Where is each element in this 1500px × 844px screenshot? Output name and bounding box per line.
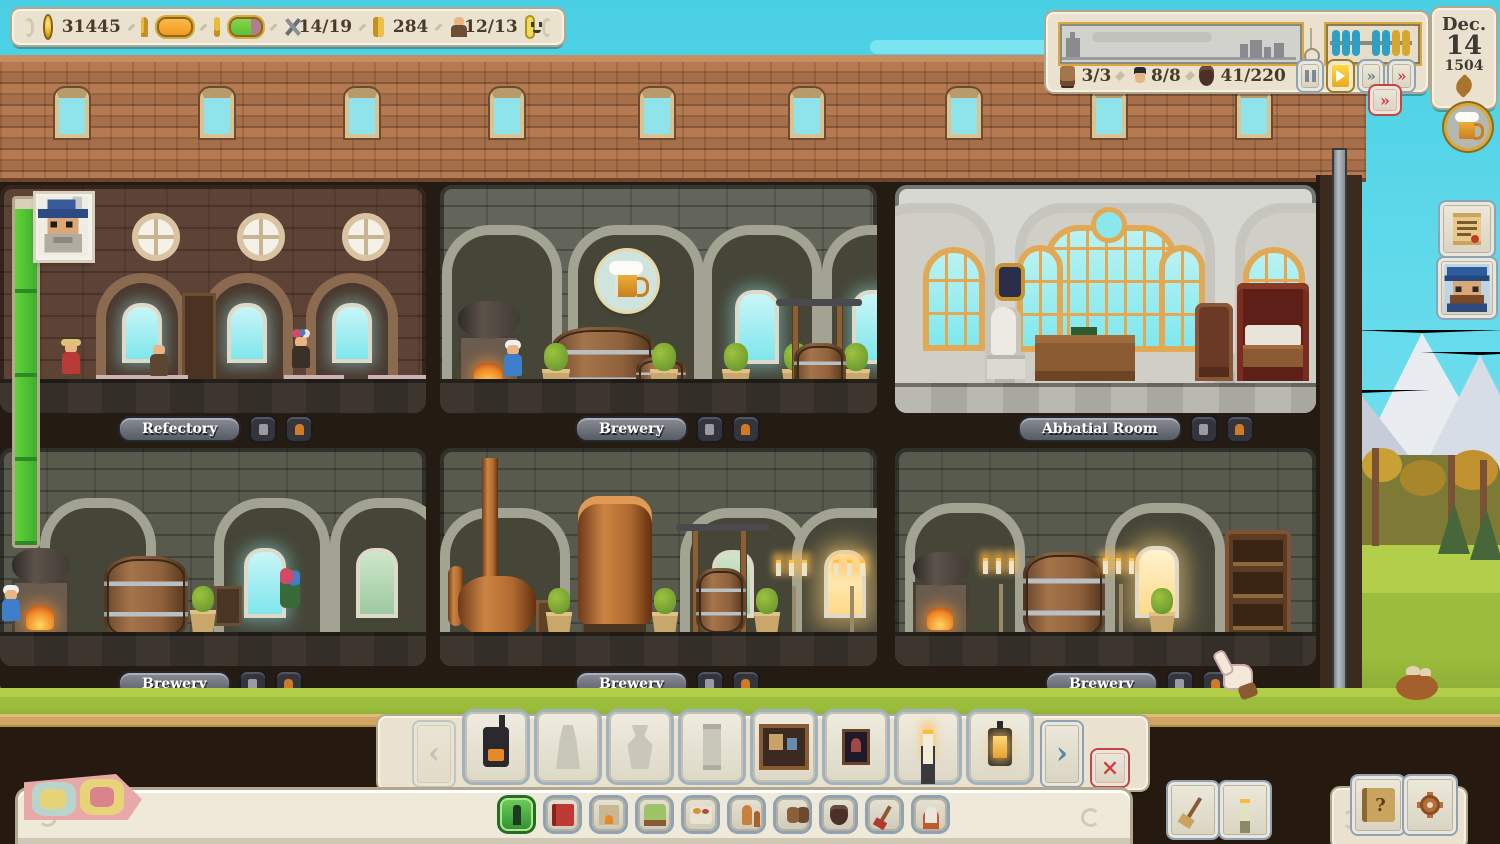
abacus-bead-blue: [1352, 30, 1360, 56]
arched-window: [356, 548, 398, 618]
scroll-curl: [24, 18, 34, 37]
room-label: Refectory: [118, 416, 241, 442]
hop-plant: [654, 588, 676, 614]
category-statues-button[interactable]: [914, 798, 947, 831]
date-year: 1504: [1434, 58, 1494, 74]
scroll-curl: [542, 18, 552, 37]
cauldron: [458, 301, 520, 339]
copper-still[interactable]: [458, 576, 536, 638]
build-item-icon-painting[interactable]: [825, 712, 887, 782]
hop-plant: [1151, 588, 1173, 614]
bottle-cabinet[interactable]: [1225, 530, 1291, 638]
divider: [435, 23, 442, 30]
scroll-curl: [1081, 808, 1100, 827]
mushroom: [1420, 668, 1431, 676]
hop-plant: [192, 586, 214, 612]
autumn-tree: [1400, 460, 1446, 496]
candelabra: [850, 586, 854, 638]
build-item-painting[interactable]: [753, 712, 815, 782]
progress-timeline[interactable]: [1060, 24, 1302, 64]
mug-handle: [637, 277, 649, 297]
candelabra: [999, 584, 1003, 638]
fountain-blueprint-icon: [626, 725, 654, 769]
autumn-tree: [1448, 450, 1498, 490]
statue-icon: [925, 807, 937, 823]
side-window: [923, 247, 985, 351]
copper-tank[interactable]: [578, 496, 652, 624]
category-storage-button[interactable]: [822, 798, 855, 831]
build-item-statue-blueprint[interactable]: [537, 712, 599, 782]
furnace-fire: [26, 606, 54, 630]
press-bar: [676, 524, 770, 531]
grand-window: [1045, 225, 1177, 352]
candelabra: [792, 586, 796, 638]
arched-window: [227, 303, 267, 363]
furnace-fire: [927, 608, 953, 630]
press-barrel[interactable]: [696, 568, 746, 636]
category-books-button[interactable]: [546, 798, 579, 831]
dormer-window: [947, 88, 981, 138]
bottle-icon: [513, 805, 521, 825]
storage-value: 41/220: [1220, 66, 1285, 86]
large-barrel[interactable]: [104, 556, 188, 642]
room-label-group: Brewery: [575, 415, 760, 443]
toolbar-next-button[interactable]: ›: [1042, 722, 1082, 786]
recipe-book-icon: [373, 17, 384, 37]
build-item-column-blueprint[interactable]: [681, 712, 743, 782]
category-cleaning-button[interactable]: [868, 798, 901, 831]
room-label-group: Abbatial Room: [1018, 415, 1254, 443]
statue-blueprint-icon: [556, 725, 580, 769]
window-crown: [1091, 207, 1127, 243]
build-item-fountain-blueprint[interactable]: [609, 712, 671, 782]
candle-icon: [923, 730, 933, 764]
room-brewery-bl[interactable]: [0, 448, 426, 666]
cabinet-shelf: [1233, 604, 1283, 630]
drainpipe: [1334, 150, 1345, 695]
dormer-window: [640, 88, 674, 138]
candles: [776, 560, 807, 576]
room-brewery-top[interactable]: [440, 185, 877, 413]
iron-stove-icon: [483, 727, 509, 767]
candle-icon: [1240, 799, 1250, 821]
room-label-group: Refectory: [118, 415, 313, 443]
game-screen: Refectory Brewery Abbatial Room: [0, 0, 1500, 844]
thumbs-up-icon: [141, 17, 147, 37]
category-decor-button[interactable]: [500, 798, 533, 831]
work-stool: [214, 586, 242, 626]
settings-button[interactable]: [1404, 776, 1456, 834]
bed-icon: [644, 804, 666, 826]
broom-icon: [1184, 797, 1202, 823]
writing-desk[interactable]: [1035, 335, 1135, 381]
dormer-window: [1237, 88, 1271, 138]
character-nun[interactable]: [2, 588, 20, 632]
rose-window: [237, 213, 285, 261]
mood-smiley-icon[interactable]: [527, 17, 533, 37]
workers-value: 8/8: [1151, 66, 1181, 86]
abacus-bead-yellow: [1392, 30, 1400, 56]
room-brewery-bm[interactable]: [440, 448, 877, 666]
dormer-window: [345, 88, 379, 138]
divider: [269, 23, 276, 30]
advisor-portrait-button[interactable]: [1438, 258, 1496, 318]
delete-room-button[interactable]: [1190, 415, 1218, 443]
speed-alert-button[interactable]: »: [1370, 86, 1400, 114]
toolbar-prev-button[interactable]: ‹: [414, 722, 454, 786]
category-tables-button[interactable]: [684, 798, 717, 831]
build-item-lantern[interactable]: [969, 712, 1031, 782]
divider: [359, 23, 366, 30]
assign-monk-button[interactable]: [1226, 415, 1254, 443]
toolbar-close-button[interactable]: ×: [1092, 750, 1128, 786]
beer-mug-icon: [1459, 119, 1475, 139]
still-pipe: [482, 458, 498, 578]
help-button[interactable]: ?: [1352, 776, 1404, 834]
canopy-bed[interactable]: [1237, 283, 1309, 381]
dormer-window: [790, 88, 824, 138]
coin-icon: [43, 14, 53, 40]
pause-button[interactable]: [1298, 61, 1323, 91]
beer-foam: [1455, 112, 1479, 122]
cabinet-shelf: [1233, 540, 1283, 566]
candelabra: [1119, 584, 1123, 638]
wardrobe[interactable]: [1195, 303, 1233, 381]
beer-badge-button[interactable]: [1447, 106, 1489, 148]
press-bar: [776, 299, 862, 306]
still-icon: [742, 805, 752, 825]
status-panel: 3/3 8/8 41/220 » »: [1046, 12, 1428, 92]
abacus-bead-blue: [1332, 30, 1340, 56]
build-item-stove[interactable]: [465, 712, 527, 782]
dormer-window: [55, 88, 89, 138]
hop-plant: [548, 588, 570, 614]
room-label: Brewery: [575, 416, 688, 442]
character-monk-flowers[interactable]: [292, 337, 310, 383]
hop-plant: [844, 343, 868, 371]
autumn-tree: [1362, 448, 1402, 482]
arched-window: [332, 303, 372, 363]
mattress: [1245, 325, 1301, 347]
room-label: Abbatial Room: [1018, 416, 1182, 442]
broom-icon: [878, 805, 891, 824]
statue[interactable]: [991, 307, 1021, 355]
divider: [1115, 71, 1125, 81]
sack-icon: [830, 805, 848, 825]
room-brewery-br[interactable]: [895, 448, 1316, 666]
fireplace-icon: [599, 805, 619, 825]
dormer-window: [200, 88, 234, 138]
play-button[interactable]: [1328, 61, 1353, 91]
carts-value: 3/3: [1081, 66, 1111, 86]
divider: [1185, 71, 1195, 81]
room-abbatial[interactable]: [895, 185, 1316, 413]
resource-bar: 31445 14/19 284 12/13: [12, 9, 564, 45]
tree-trunk: [1372, 448, 1379, 546]
hand-cursor: [1205, 650, 1261, 702]
mushroom: [1406, 666, 1420, 675]
abacus-bead-blue: [1342, 30, 1350, 56]
category-fireplace-button[interactable]: [592, 798, 625, 831]
rose-window: [132, 213, 180, 261]
quality-bar: [229, 17, 263, 37]
category-brewing-button[interactable]: [730, 798, 763, 831]
letter-button[interactable]: [1440, 202, 1494, 256]
hop-plant: [756, 588, 778, 614]
visitor-portrait-card[interactable]: [36, 194, 92, 260]
candles: [983, 558, 1014, 574]
food-table-icon: [690, 806, 712, 824]
divider: [127, 23, 134, 30]
dormer-window: [1092, 88, 1126, 138]
wall-portrait: [995, 263, 1025, 301]
book-icon: [552, 804, 574, 826]
column-blueprint-icon: [703, 724, 721, 770]
candles: [834, 560, 865, 576]
advisor-portrait: [1444, 264, 1490, 312]
cauldron: [12, 548, 70, 584]
gear-icon: [1417, 792, 1443, 818]
lantern-icon: [988, 728, 1012, 766]
beer-foam: [609, 261, 643, 275]
pine-tree: [1470, 508, 1500, 560]
satisfaction-bar: [157, 17, 194, 37]
rose-window: [342, 213, 390, 261]
cart-icon: [1060, 66, 1075, 86]
bed-frame: [1243, 345, 1303, 367]
monks-value: 12/13: [464, 17, 518, 37]
help-book-icon: ?: [1362, 788, 1395, 822]
barrels-icon: [787, 807, 799, 823]
statue-pedestal: [987, 355, 1025, 379]
monk-icon: [449, 17, 455, 37]
sweep-mode-button[interactable]: [1168, 782, 1218, 838]
status-row: 3/3 8/8 41/220 » »: [1060, 64, 1414, 88]
hop-plant: [544, 343, 568, 371]
light-mode-button[interactable]: [1220, 782, 1270, 838]
recipes-value: 284: [393, 17, 429, 37]
mug-handle: [1474, 123, 1484, 140]
delete-room-button[interactable]: [696, 415, 724, 443]
icon-painting-icon: [842, 729, 870, 765]
abacus-bead-blue: [1372, 30, 1380, 56]
cabinet-shelf: [1233, 572, 1283, 598]
category-beds-button[interactable]: [638, 798, 671, 831]
candles: [1103, 558, 1134, 574]
beer-quality-icon: [214, 17, 220, 37]
large-barrel[interactable]: [1023, 552, 1105, 642]
visitor-portrait: [38, 196, 88, 256]
assign-monk-button[interactable]: [285, 415, 313, 443]
coins-value: 31445: [62, 17, 121, 37]
abacus-bead-blue: [1382, 30, 1390, 56]
rock-pile[interactable]: [1396, 674, 1438, 700]
beer-ready-bubble[interactable]: [597, 251, 657, 311]
tools-value: 14/19: [299, 17, 353, 37]
date-panel: Dec. 14 1504: [1432, 8, 1496, 108]
abacus: [1326, 24, 1420, 64]
delete-room-button[interactable]: [249, 415, 277, 443]
assign-monk-button[interactable]: [732, 415, 760, 443]
pine-tree: [1438, 502, 1470, 554]
divider: [200, 23, 207, 30]
date-day: 14: [1434, 35, 1494, 58]
worker-icon: [1130, 66, 1145, 86]
cauldron: [913, 552, 969, 586]
scroll-icon: [1453, 213, 1481, 245]
leaf-icon: [1452, 74, 1476, 98]
hop-plant: [652, 343, 676, 371]
abacus-bead-yellow: [1402, 30, 1410, 56]
tools-icon: [283, 17, 289, 37]
build-item-candle[interactable]: [897, 712, 959, 782]
sack-icon: [1199, 66, 1214, 86]
hop-plant: [724, 343, 748, 371]
framed-painting-icon: [759, 724, 809, 770]
visitor-progress-fill: [15, 209, 37, 545]
category-barrels-button[interactable]: [776, 798, 809, 831]
desk-book: [1071, 327, 1097, 335]
dormer-window: [490, 88, 524, 138]
flower-vase: [280, 568, 300, 608]
